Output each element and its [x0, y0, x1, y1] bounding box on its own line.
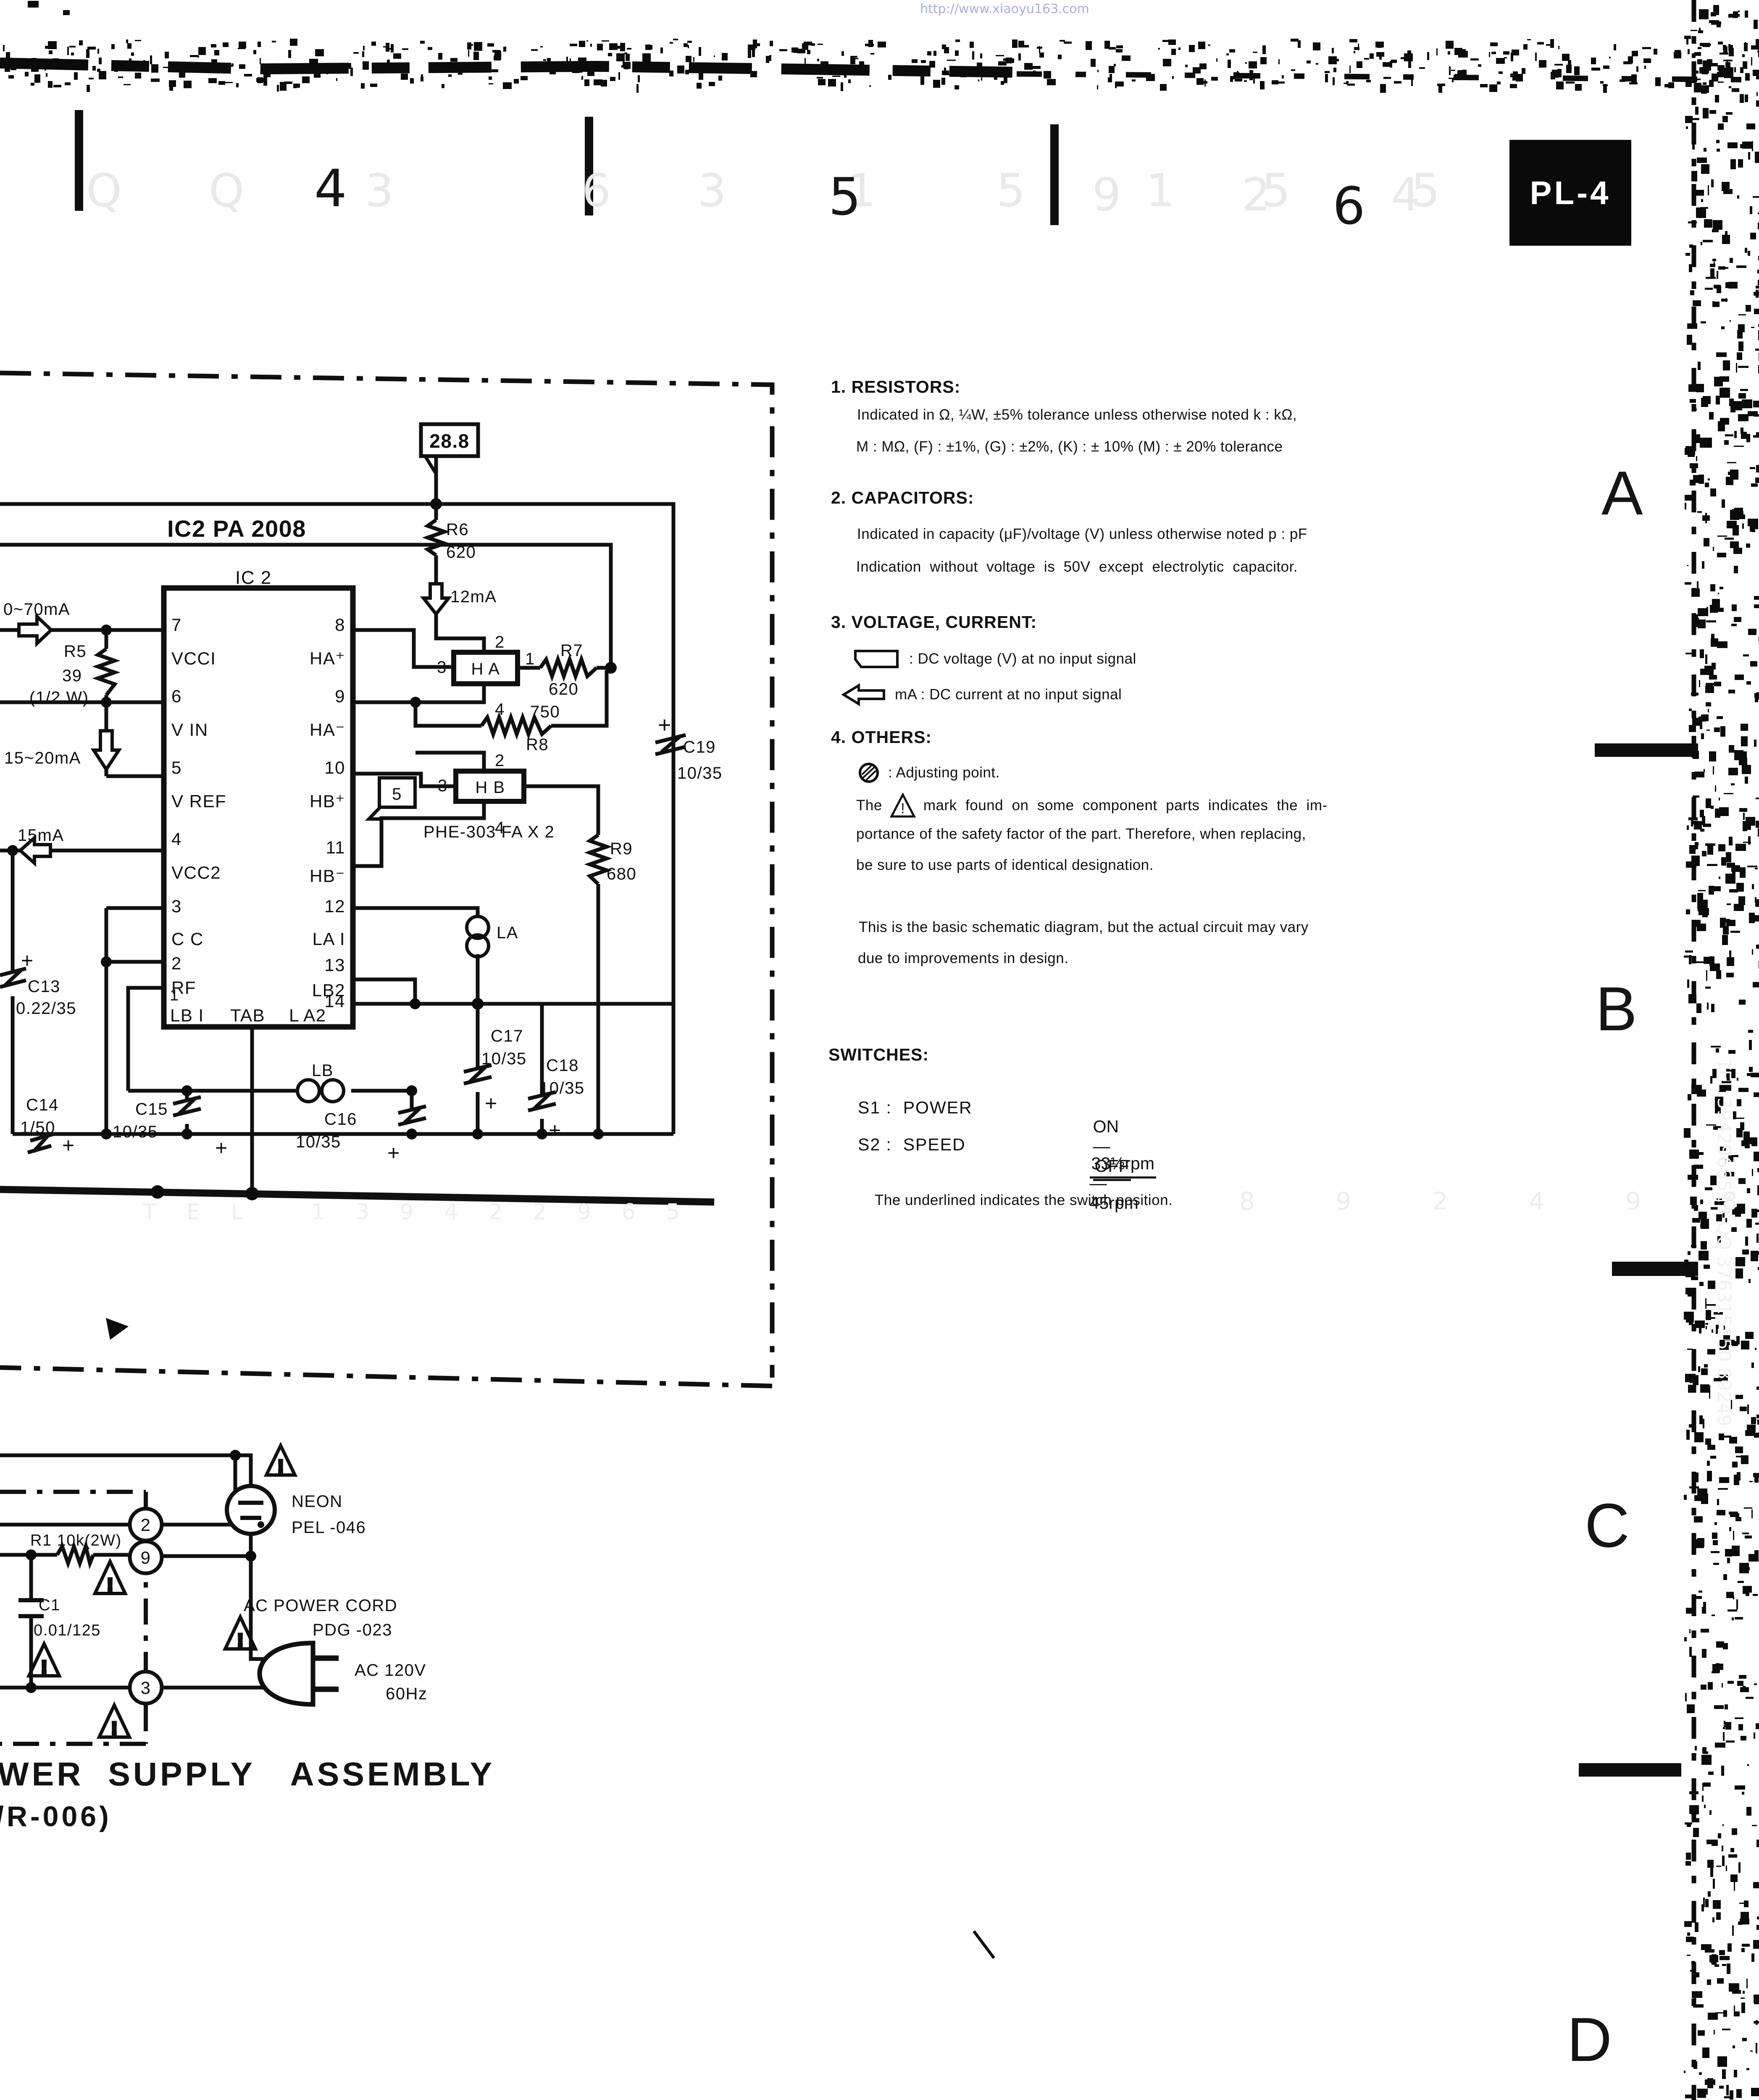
row-letter-d: D [1567, 2004, 1612, 2076]
hb-pin2: 2 [495, 751, 505, 770]
arrow-down-15-20ma [94, 731, 119, 769]
c14-plus: + [62, 1134, 75, 1157]
tick-top-1 [75, 110, 83, 211]
pin12-name: LA I [313, 929, 345, 949]
capacitors-line2: Indication without voltage is 50V except… [856, 559, 1298, 575]
resistors [57, 520, 607, 1563]
safety-line1: The ! mark found on some component parts… [856, 792, 1328, 819]
c16-ref: C16 [324, 1110, 357, 1129]
warning-triangle-icon: ! [95, 1562, 125, 1595]
c14-ref: C14 [26, 1096, 59, 1114]
adjusting-point-item: : Adjusting point. [857, 761, 1000, 785]
dc-current-arrow-icon [840, 683, 887, 706]
hb-name: H B [475, 778, 505, 797]
current-arrows [19, 584, 449, 863]
coil-la [467, 916, 489, 957]
ac-plug [260, 1643, 339, 1704]
current-item: mA : DC current at no input signal [840, 683, 1122, 706]
c19-plus: + [658, 712, 672, 738]
grid-top-6: 6 [1333, 176, 1365, 236]
pin3: 3 [171, 896, 182, 916]
c18-plus: + [549, 1118, 562, 1142]
safety-line2: portance of the safety factor of the par… [856, 826, 1306, 843]
neon-lamp [227, 1486, 275, 1534]
cord-label: AC POWER CORD [244, 1596, 397, 1615]
svg-text:!: ! [108, 1575, 113, 1595]
disclaimer-line1: This is the basic schematic diagram, but… [859, 919, 1309, 936]
pin6: 6 [171, 686, 182, 706]
c1-val: 0.01/125 [34, 1622, 101, 1639]
safety-warning-triangle-icon: ! [890, 792, 916, 819]
voltage-current-heading: 3. VOLTAGE, CURRENT: [831, 612, 1037, 632]
pin4: 4 [171, 829, 182, 849]
adjusting-point-icon [857, 761, 881, 785]
resistor-r6 [428, 520, 444, 555]
ghost-digits-mid: 8 9 2 4 9 8 2 [1239, 1187, 1759, 1215]
r8-ref: R8 [526, 735, 549, 754]
schematic-boundary [0, 373, 772, 1386]
pin11: 11 [326, 837, 345, 857]
pin3-name: C C [171, 929, 204, 949]
c15-ref: C15 [135, 1100, 168, 1118]
pin13: 13 [324, 955, 345, 975]
assembly-subtitle: /R-006) [0, 1800, 112, 1833]
pin1-name: LB I [170, 1005, 204, 1025]
ha-name: H A [471, 660, 500, 678]
section-bar-c [1579, 1763, 1681, 1777]
ha-pin2: 2 [495, 633, 505, 651]
r7-ref: R7 [560, 641, 583, 660]
c15-val: 10/35 [113, 1123, 158, 1141]
pin7-name: VCCI [171, 648, 216, 668]
capacitors-line1: Indicated in capacity (μF)/voltage (V) u… [857, 526, 1307, 543]
pin10: 10 [324, 758, 345, 777]
ghost-tel-row: T E L 1 3 9 4 2 2 9 6 5 [143, 1200, 692, 1225]
pin1: 1 [170, 987, 179, 1004]
ac-freq: 60Hz [386, 1685, 427, 1703]
neon-name: NEON [292, 1492, 343, 1511]
grid-top-4: 4 [314, 159, 347, 218]
page-code-badge: PL-4 [1509, 140, 1631, 246]
i-15-20ma: 15~20mA [4, 749, 81, 767]
pin11-name: HB⁻ [310, 866, 345, 886]
c13-ref: C13 [28, 977, 60, 996]
c19-ref: C19 [683, 738, 716, 756]
safety-line1-post: mark found on some component parts indic… [923, 797, 1328, 814]
scanned-schematic-page: { "page": { "code": "PL-4", "page_number… [0, 0, 1759, 2100]
cord-part: PDG -023 [313, 1621, 392, 1639]
arrow-down-12ma [423, 584, 449, 614]
ha-pin3: 3 [437, 658, 447, 677]
flag-28v8: 28.8 [429, 430, 470, 452]
cap-c19 [655, 735, 686, 754]
voltage-item: : DC voltage (V) at no input signal [852, 647, 1136, 671]
pin9: 9 [335, 686, 345, 706]
c17-ref: C17 [491, 1027, 523, 1045]
c17-plus: + [485, 1092, 498, 1115]
c18-ref: C18 [546, 1056, 579, 1075]
section-bar-a [1595, 743, 1698, 757]
row-letter-b: B [1596, 974, 1637, 1045]
pin6-name: V IN [171, 720, 208, 740]
i-0-70ma: 0~70mA [3, 600, 70, 619]
pin12: 12 [324, 896, 345, 916]
r1-label: R1 10k(2W) [30, 1532, 122, 1549]
s1-on: ON [1093, 1117, 1119, 1136]
neon-part: PEL -046 [292, 1518, 366, 1537]
resistors-line1: Indicated in Ω, ¼W, ±5% tolerance unless… [857, 407, 1297, 423]
c14-val: 1/50 [20, 1118, 55, 1137]
hb-pin3: 3 [438, 777, 448, 795]
c16-plus: + [387, 1141, 400, 1165]
r6-ref: R6 [446, 520, 469, 539]
i-15ma: 15mA [18, 826, 64, 845]
r6-val: 620 [446, 543, 476, 562]
ghost-digits-right: 9 2 4 9 8 2 [1092, 169, 1759, 221]
row-letter-a: A [1601, 458, 1643, 529]
tab-name: TAB [230, 1005, 265, 1025]
page-code: PL-4 [1530, 174, 1611, 212]
c17-val: 10/35 [481, 1050, 527, 1068]
safety-line3: be sure to use parts of identical design… [856, 857, 1154, 874]
resistor-r7 [540, 659, 597, 676]
r9-val: 680 [607, 865, 636, 883]
current-item-text: mA : DC current at no input signal [895, 686, 1122, 703]
r5-ref: R5 [64, 642, 87, 661]
r5-val: 39 [62, 667, 82, 685]
resistor-r9 [590, 835, 607, 884]
voltage-item-text: : DC voltage (V) at no input signal [909, 651, 1136, 667]
switch-s1-label: S1 : POWER [858, 1098, 973, 1118]
r8-val: 750 [530, 703, 560, 721]
ac-voltage: AC 120V [355, 1661, 426, 1680]
svg-text:!: ! [278, 1457, 283, 1476]
warning-triangle-icon: ! [99, 1705, 129, 1738]
s2-dash: — [1090, 1173, 1107, 1193]
pin5: 5 [171, 758, 182, 777]
svg-text:!: ! [901, 801, 904, 816]
pin8: 8 [335, 615, 345, 635]
pin10-name: HB⁺ [310, 791, 345, 811]
svg-text:!: ! [42, 1657, 47, 1677]
r5-wat: (1/2 W) [29, 688, 89, 707]
resistor-r5 [98, 649, 115, 695]
dc-voltage-flag-icon [852, 647, 902, 671]
pin8-name: HA⁺ [310, 648, 345, 668]
c18-val: 10/35 [539, 1079, 585, 1097]
c13-plus: + [21, 949, 34, 972]
ic2-box-title: IC 2 [235, 567, 272, 588]
phe-label: PHE-303 FA X 2 [423, 823, 555, 841]
arrow-right-0-70ma [19, 617, 51, 643]
c13-val: 0.22/35 [16, 999, 76, 1018]
pin14: 14 [324, 991, 345, 1011]
ha-pin4: 4 [495, 700, 505, 719]
coil-lb [297, 1080, 344, 1102]
capacitors-heading: 2. CAPACITORS: [831, 488, 974, 508]
switches-heading: SWITCHES: [828, 1045, 929, 1065]
resistors-heading: 1. RESISTORS: [831, 377, 960, 397]
pin14-name: L A2 [289, 1005, 326, 1025]
r9-ref: R9 [610, 840, 633, 858]
lb-name: LB [312, 1061, 334, 1080]
c15-plus: + [215, 1136, 228, 1160]
switches-note: The underlined indicates the switch posi… [875, 1192, 1173, 1209]
watermark-url-top: http://www.xiaoyu163.com [920, 2, 1089, 16]
cap-c15 [173, 1097, 201, 1116]
grid-top-5: 5 [828, 167, 861, 227]
resistors-line2: M : MΩ, (F) : ±1%, (G) : ±2%, (K) : ± 10… [856, 438, 1283, 455]
cap-c16 [398, 1106, 426, 1125]
others-heading: 4. OTHERS: [831, 727, 932, 747]
pin4-name: VCC2 [171, 863, 221, 882]
warning-triangle-icon: ! [266, 1446, 295, 1476]
wires [0, 456, 714, 1688]
conn-3: 3 [141, 1678, 151, 1698]
ha-pin1: 1 [525, 650, 535, 668]
c16-val: 10/35 [296, 1133, 341, 1151]
pin2: 2 [171, 953, 182, 973]
flag-5: 5 [392, 785, 402, 803]
switch-s2-value: 33⅓rpm — 45rpm [1070, 1134, 1156, 1233]
disclaimer-line2: due to improvements in design. [858, 950, 1068, 967]
c1-ref: C1 [39, 1596, 60, 1614]
i-12ma: 12mA [450, 588, 497, 606]
pin9-name: HA⁻ [310, 720, 345, 740]
assembly-title: WER SUPPLY ASSEMBLY [0, 1755, 495, 1793]
conn-9: 9 [141, 1548, 151, 1567]
warning-triangle-icon: ! [29, 1644, 59, 1677]
stray-line [974, 1931, 994, 1958]
pin5-name: V REF [171, 791, 226, 811]
la-name: LA [497, 924, 518, 942]
cursor-mark [106, 1318, 129, 1340]
svg-text:!: ! [112, 1719, 117, 1738]
adjusting-point-text: : Adjusting point. [888, 764, 1000, 781]
safety-line1-pre: The [856, 797, 882, 814]
ic2-title: IC2 PA 2008 [167, 515, 306, 542]
conn-2: 2 [141, 1515, 151, 1535]
switch-s2-label: S2 : SPEED [858, 1135, 966, 1155]
pin7: 7 [171, 615, 182, 635]
c19-val: 10/35 [677, 764, 723, 782]
row-letter-c: C [1585, 1490, 1630, 1562]
svg-text:!: ! [238, 1630, 243, 1650]
schematic-labels: 28.8IC2 PA 2008R662012mAIC 27VCCI6V IN5V… [3, 430, 723, 1703]
ghost-vertical-text: TEL 3942966513 QQ 376315150 89249 [1713, 1058, 1735, 1426]
r7-val: 620 [549, 680, 578, 698]
